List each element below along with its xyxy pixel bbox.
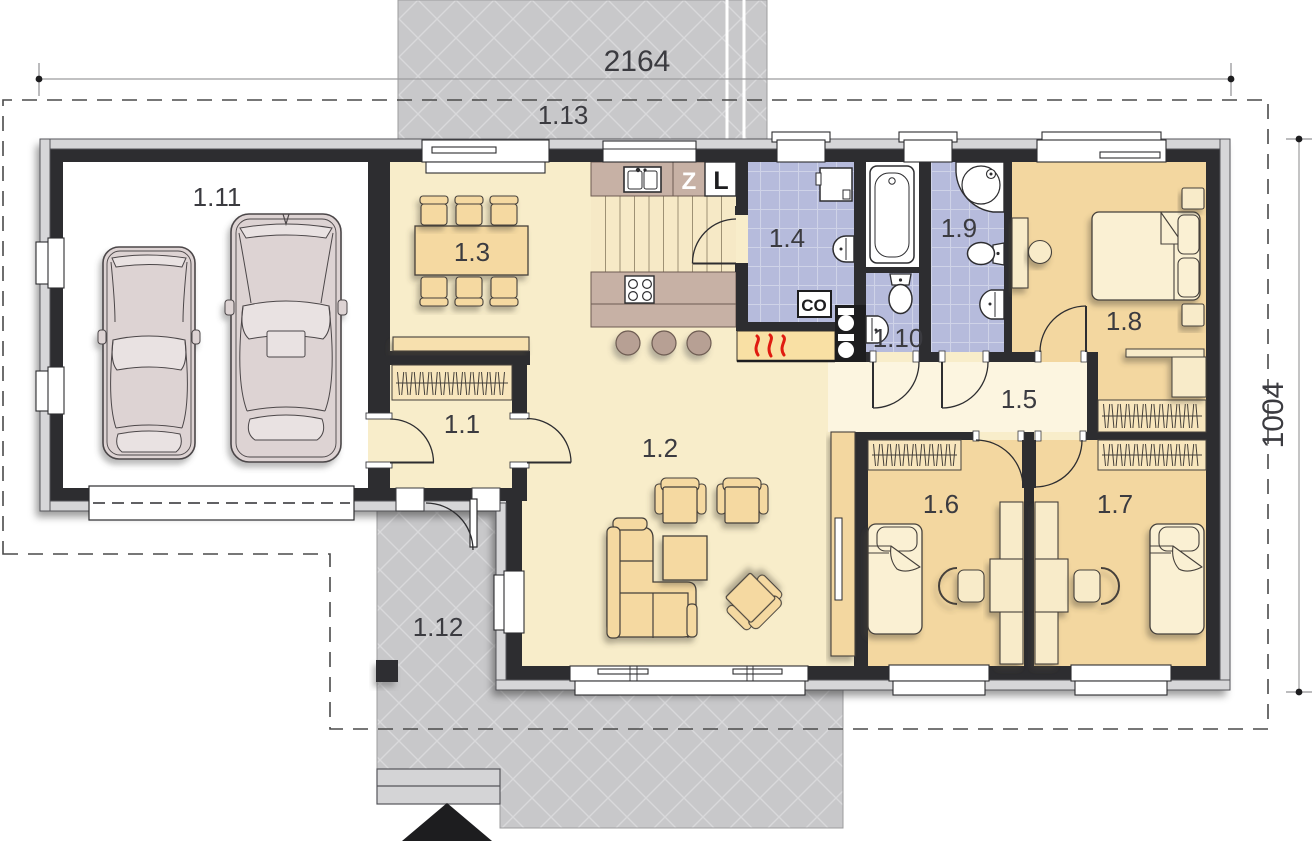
svg-text:Z: Z — [682, 168, 697, 195]
svg-text:1.7: 1.7 — [1097, 489, 1133, 519]
svg-text:1.6: 1.6 — [923, 489, 959, 519]
svg-text:1.3: 1.3 — [454, 237, 490, 267]
svg-text:1.2: 1.2 — [642, 433, 678, 463]
svg-text:L: L — [713, 167, 728, 195]
svg-text:1004: 1004 — [1257, 382, 1290, 449]
svg-text:2164: 2164 — [604, 45, 671, 78]
svg-text:1.9: 1.9 — [941, 213, 977, 243]
svg-text:1.5: 1.5 — [1001, 384, 1037, 414]
svg-text:1.1: 1.1 — [444, 409, 480, 439]
svg-text:CO: CO — [801, 296, 827, 315]
svg-text:1.13: 1.13 — [538, 100, 589, 130]
svg-text:1.4: 1.4 — [769, 223, 805, 253]
svg-text:1.11: 1.11 — [193, 182, 242, 212]
svg-text:1.10: 1.10 — [873, 323, 924, 353]
svg-text:1.12: 1.12 — [413, 612, 464, 642]
svg-text:1.8: 1.8 — [1106, 306, 1142, 336]
